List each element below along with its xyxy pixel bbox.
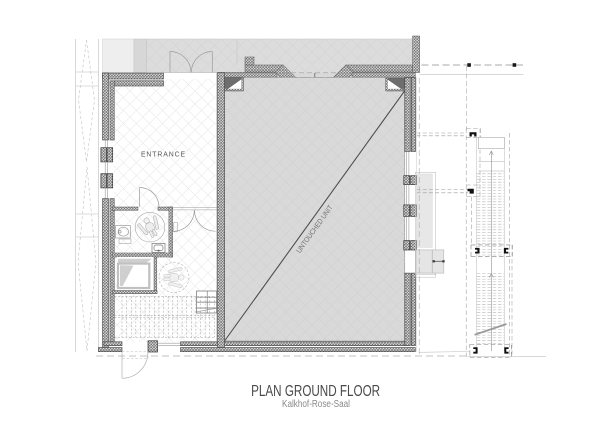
svg-text:ENTRANCE: ENTRANCE — [141, 151, 186, 158]
svg-text:Kalkhof-Rose-Saal: Kalkhof-Rose-Saal — [282, 399, 350, 410]
svg-text:PLAN GROUND FLOOR: PLAN GROUND FLOOR — [251, 383, 380, 400]
